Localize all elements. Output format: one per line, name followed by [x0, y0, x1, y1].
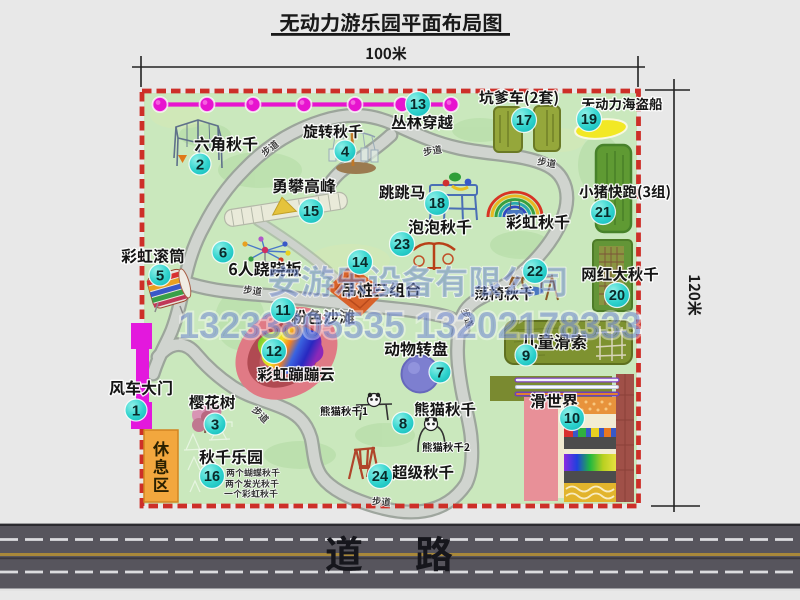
svg-text:16: 16	[204, 469, 220, 485]
svg-text:10: 10	[564, 411, 580, 427]
svg-text:2: 2	[196, 156, 204, 173]
svg-text:23: 23	[394, 237, 410, 253]
svg-text:7: 7	[436, 364, 444, 381]
svg-text:5: 5	[156, 267, 164, 284]
svg-text:22: 22	[527, 264, 543, 280]
svg-text:1: 1	[132, 402, 140, 419]
svg-text:13: 13	[410, 97, 426, 113]
svg-text:11: 11	[275, 303, 290, 319]
svg-text:24: 24	[372, 469, 388, 485]
svg-text:9: 9	[522, 347, 530, 364]
svg-text:3: 3	[211, 416, 219, 433]
svg-text:20: 20	[609, 288, 625, 304]
svg-text:13233805535 13202178333: 13233805535 13202178333	[179, 305, 642, 346]
svg-text:6: 6	[219, 244, 227, 261]
svg-text:15: 15	[303, 204, 319, 220]
svg-text:21: 21	[595, 205, 611, 221]
svg-text:18: 18	[429, 196, 445, 212]
svg-text:12: 12	[266, 344, 282, 360]
svg-text:17: 17	[516, 113, 532, 129]
svg-text:4: 4	[341, 143, 350, 160]
svg-text:14: 14	[352, 255, 368, 271]
svg-text:19: 19	[581, 112, 597, 128]
svg-text:8: 8	[399, 415, 407, 432]
